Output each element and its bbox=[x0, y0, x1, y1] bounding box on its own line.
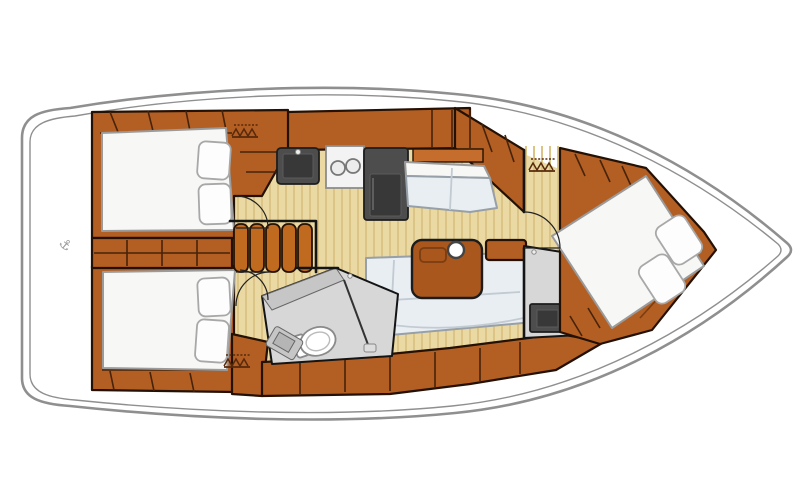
aft-cabin-starboard-pillow-1 bbox=[197, 277, 231, 317]
forward-head-knob bbox=[532, 250, 536, 254]
stove-burner-2 bbox=[346, 159, 360, 173]
step-5 bbox=[298, 224, 312, 272]
step-1 bbox=[234, 224, 248, 272]
galley-faucet bbox=[296, 150, 301, 155]
step-3 bbox=[266, 224, 280, 272]
galley-sink-basin bbox=[283, 154, 313, 178]
yacht-floor-plan: ⚓ bbox=[0, 0, 810, 500]
shower-drain bbox=[364, 344, 376, 352]
chaise-settee bbox=[405, 162, 497, 212]
stove-burner-1 bbox=[331, 161, 345, 175]
galley-shelf bbox=[413, 149, 483, 162]
settee-console bbox=[486, 240, 526, 260]
step-4 bbox=[282, 224, 296, 272]
midship-head-knob bbox=[348, 274, 352, 278]
mast-post bbox=[448, 242, 464, 258]
forward-vanity-sink bbox=[537, 310, 558, 327]
aft-cabin-starboard-pillow-2 bbox=[195, 319, 230, 363]
step-2 bbox=[250, 224, 264, 272]
aft-cabin-port-pillow-1 bbox=[197, 141, 232, 180]
companionway-steps bbox=[230, 221, 316, 272]
aft-cabin-port-pillow-2 bbox=[198, 183, 231, 224]
refrigerator-door bbox=[370, 174, 401, 216]
galley-cabinet-band bbox=[287, 108, 470, 150]
